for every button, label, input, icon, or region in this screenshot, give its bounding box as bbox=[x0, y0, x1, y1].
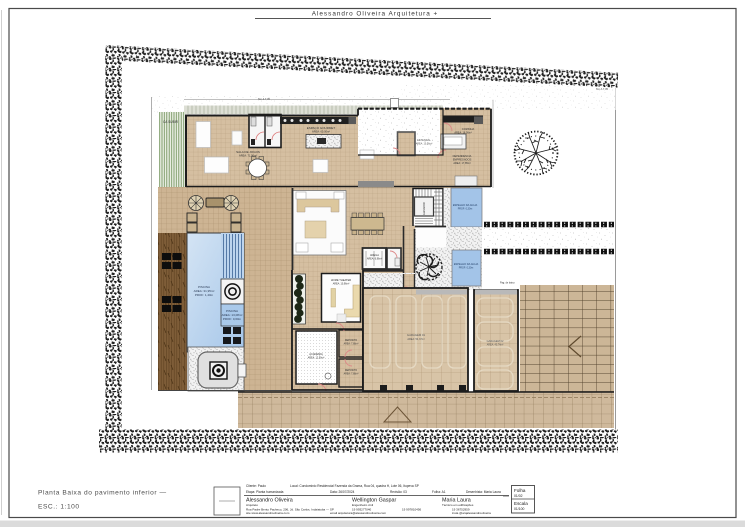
svg-text:DEPENDENCIA: DEPENDENCIA bbox=[453, 154, 472, 158]
svg-text:GARAGEM 02: GARAGEM 02 bbox=[487, 339, 504, 343]
svg-text:Folha: A1: Folha: A1 bbox=[432, 490, 446, 494]
svg-text:Local: Condominio Residencial: Local: Condominio Residencial Fazenda da… bbox=[290, 484, 419, 488]
svg-text:ESTENDAL: ESTENDAL bbox=[417, 138, 431, 142]
svg-text:ADEGA: ADEGA bbox=[370, 253, 379, 257]
svg-text:AREA: 10,96m²: AREA: 10,96m² bbox=[333, 283, 350, 286]
svg-text:ACADEMIA: ACADEMIA bbox=[309, 352, 323, 356]
svg-text:Pag. de baixo: Pag. de baixo bbox=[500, 282, 515, 285]
svg-text:DEPOSITO: DEPOSITO bbox=[345, 339, 357, 342]
svg-text:Cliente: Paulo: Cliente: Paulo bbox=[246, 484, 266, 488]
svg-text:Planta Baixa do pavimento: Planta Baixa do pavimento inferior — bbox=[38, 490, 167, 497]
svg-text:site www.alessandrooliveira.co: site www.alessandrooliveira.com bbox=[246, 511, 290, 515]
svg-text:AREA: 12,90m²: AREA: 12,90m² bbox=[308, 357, 325, 360]
svg-text:19 997810456: 19 997810456 bbox=[402, 508, 422, 512]
svg-text:email arquitetura@alessandroo: email arquitetura@alessandrooliveira.com bbox=[330, 511, 387, 515]
svg-text:Folha: Folha bbox=[514, 488, 526, 493]
svg-text:Desenhista: Maria Laura: Desenhista: Maria Laura bbox=[466, 490, 501, 494]
svg-text:Técnico em edificações: Técnico em edificações bbox=[442, 503, 474, 507]
svg-text:AREA: 7,80m²: AREA: 7,80m² bbox=[344, 372, 359, 375]
svg-text:01/100: 01/100 bbox=[514, 507, 524, 511]
svg-text:ESPELHO DA AGUA: ESPELHO DA AGUA bbox=[454, 262, 479, 266]
svg-text:Revisão: 03: Revisão: 03 bbox=[390, 490, 407, 494]
svg-text:COZINHA: COZINHA bbox=[462, 127, 475, 131]
svg-text:HOME THEATER: HOME THEATER bbox=[331, 278, 351, 282]
svg-text:PROF: 0,30m: PROF: 0,30m bbox=[459, 267, 474, 270]
svg-text:Tel. A 7,05: Tel. A 7,05 bbox=[596, 87, 609, 91]
svg-text:ESPELHO DA AGUA: ESPELHO DA AGUA bbox=[453, 203, 478, 207]
svg-text:AREA: 60,00m²: AREA: 60,00m² bbox=[312, 130, 330, 134]
svg-text:Escala: Escala bbox=[514, 501, 528, 506]
svg-text:CA SUBIR: CA SUBIR bbox=[163, 120, 179, 124]
svg-text:PROF: 0,30m: PROF: 0,30m bbox=[458, 208, 473, 211]
svg-text:GARAGEM 01: GARAGEM 01 bbox=[407, 333, 426, 337]
svg-text:AREA: 54,37m²: AREA: 54,37m² bbox=[407, 338, 425, 341]
svg-text:SALA DE JOGOS: SALA DE JOGOS bbox=[236, 150, 260, 154]
svg-text:ELEVADOR: ELEVADOR bbox=[423, 202, 426, 215]
svg-text:Alessandro Oliveira Arquitet: Alessandro Oliveira Arquitetura + bbox=[312, 11, 439, 18]
svg-text:PROF: 0,60m: PROF: 0,60m bbox=[223, 317, 242, 321]
svg-text:AREA: 7,80m²: AREA: 7,80m² bbox=[344, 342, 359, 345]
svg-text:EMPREGADOS: EMPREGADOS bbox=[453, 157, 472, 161]
svg-text:AREA: 6,96m²: AREA: 6,96m² bbox=[367, 257, 382, 260]
svg-text:DEPOSITO: DEPOSITO bbox=[345, 369, 357, 372]
svg-text:AREA: 40,74m²: AREA: 40,74m² bbox=[487, 344, 504, 347]
svg-text:AREA: 17,85m²: AREA: 17,85m² bbox=[453, 162, 471, 165]
svg-text:Tel. A 7,05: Tel. A 7,05 bbox=[258, 97, 271, 101]
svg-text:ESPAÇO GOURMET: ESPAÇO GOURMET bbox=[307, 126, 336, 130]
svg-text:Engenheiro civil: Engenheiro civil bbox=[352, 503, 374, 507]
svg-text:insta @arqalessandrooliveira: insta @arqalessandrooliveira bbox=[452, 511, 491, 515]
svg-text:Etapa: Planta humanizada: Etapa: Planta humanizada bbox=[246, 490, 284, 494]
svg-text:Arquiteto: Arquiteto bbox=[246, 503, 258, 507]
svg-text:Data: 26/07/2024: Data: 26/07/2024 bbox=[330, 490, 355, 494]
svg-text:AREA: 10,56m²: AREA: 10,56m² bbox=[416, 143, 433, 146]
svg-text:AREA: 71,96m²: AREA: 71,96m² bbox=[239, 154, 257, 158]
svg-text:PROF: 1,40m: PROF: 1,40m bbox=[195, 293, 214, 297]
svg-text:ESC.: 1:100: ESC.: 1:100 bbox=[38, 504, 80, 511]
svg-text:01/02: 01/02 bbox=[514, 494, 523, 498]
